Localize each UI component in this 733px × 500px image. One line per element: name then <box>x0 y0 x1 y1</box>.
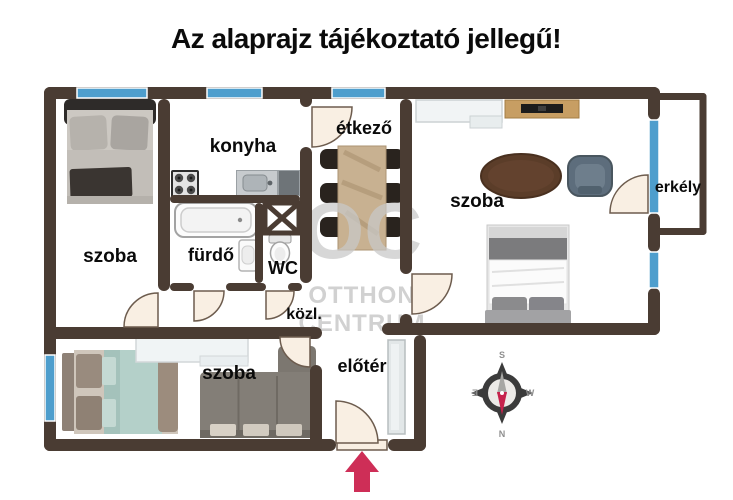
wardrobe2-icon <box>136 338 248 366</box>
bed-icon <box>64 99 156 204</box>
watermark-line1: OTTHON <box>308 282 415 309</box>
window-icon <box>45 355 55 421</box>
room-label-foyer: előtér <box>337 356 386 376</box>
entrance-door-arc-icon <box>336 401 378 443</box>
window-icon <box>77 88 147 98</box>
room-label-kitchen: konyha <box>210 136 277 157</box>
bathtub-icon <box>175 203 257 237</box>
compass-letter-e: E <box>472 388 478 398</box>
door-arc-icon <box>412 274 452 314</box>
compass-icon: S N E W <box>471 350 534 439</box>
washbasin-icon <box>239 240 257 271</box>
sink-icon <box>236 170 300 196</box>
room-label-bedroom2: szoba <box>202 363 256 384</box>
room-label-living: szoba <box>450 191 504 212</box>
tv-stand-icon <box>505 100 579 118</box>
room-label-bedroom1: szoba <box>83 246 137 267</box>
window-icon <box>649 252 659 288</box>
compass-letter-n: N <box>499 429 506 439</box>
floor-plan-page: Az alaprajz tájékoztató jellegű! <box>0 0 733 500</box>
window-icon <box>207 88 262 98</box>
entrance-arrow-icon <box>345 451 379 492</box>
balcony-door-window-icon <box>649 120 659 213</box>
shaft-x-icon <box>265 203 299 233</box>
room-label-dining: étkező <box>336 118 392 138</box>
balcony-door-arc-icon <box>610 175 648 213</box>
compass-letter-s: S <box>499 350 505 360</box>
room-label-wc: WC <box>268 258 298 278</box>
room-label-bathroom: fürdő <box>188 245 234 265</box>
room-label-balcony: erkély <box>655 179 701 196</box>
door-arc-icon <box>124 293 158 327</box>
compass-letter-w: W <box>525 388 534 398</box>
mirror-icon <box>388 340 405 434</box>
room-label-hallway: közl. <box>286 306 322 323</box>
floor-plan: Az alaprajz tájékoztató jellegű! <box>0 0 733 500</box>
door-arc-icon <box>194 291 224 321</box>
disclaimer-title: Az alaprajz tájékoztató jellegű! <box>171 23 561 54</box>
stove-icon <box>171 170 199 198</box>
wardrobe-icon <box>416 100 502 128</box>
armchair-icon <box>568 156 612 196</box>
double-bed-icon <box>485 225 571 326</box>
window-icon <box>332 88 385 98</box>
